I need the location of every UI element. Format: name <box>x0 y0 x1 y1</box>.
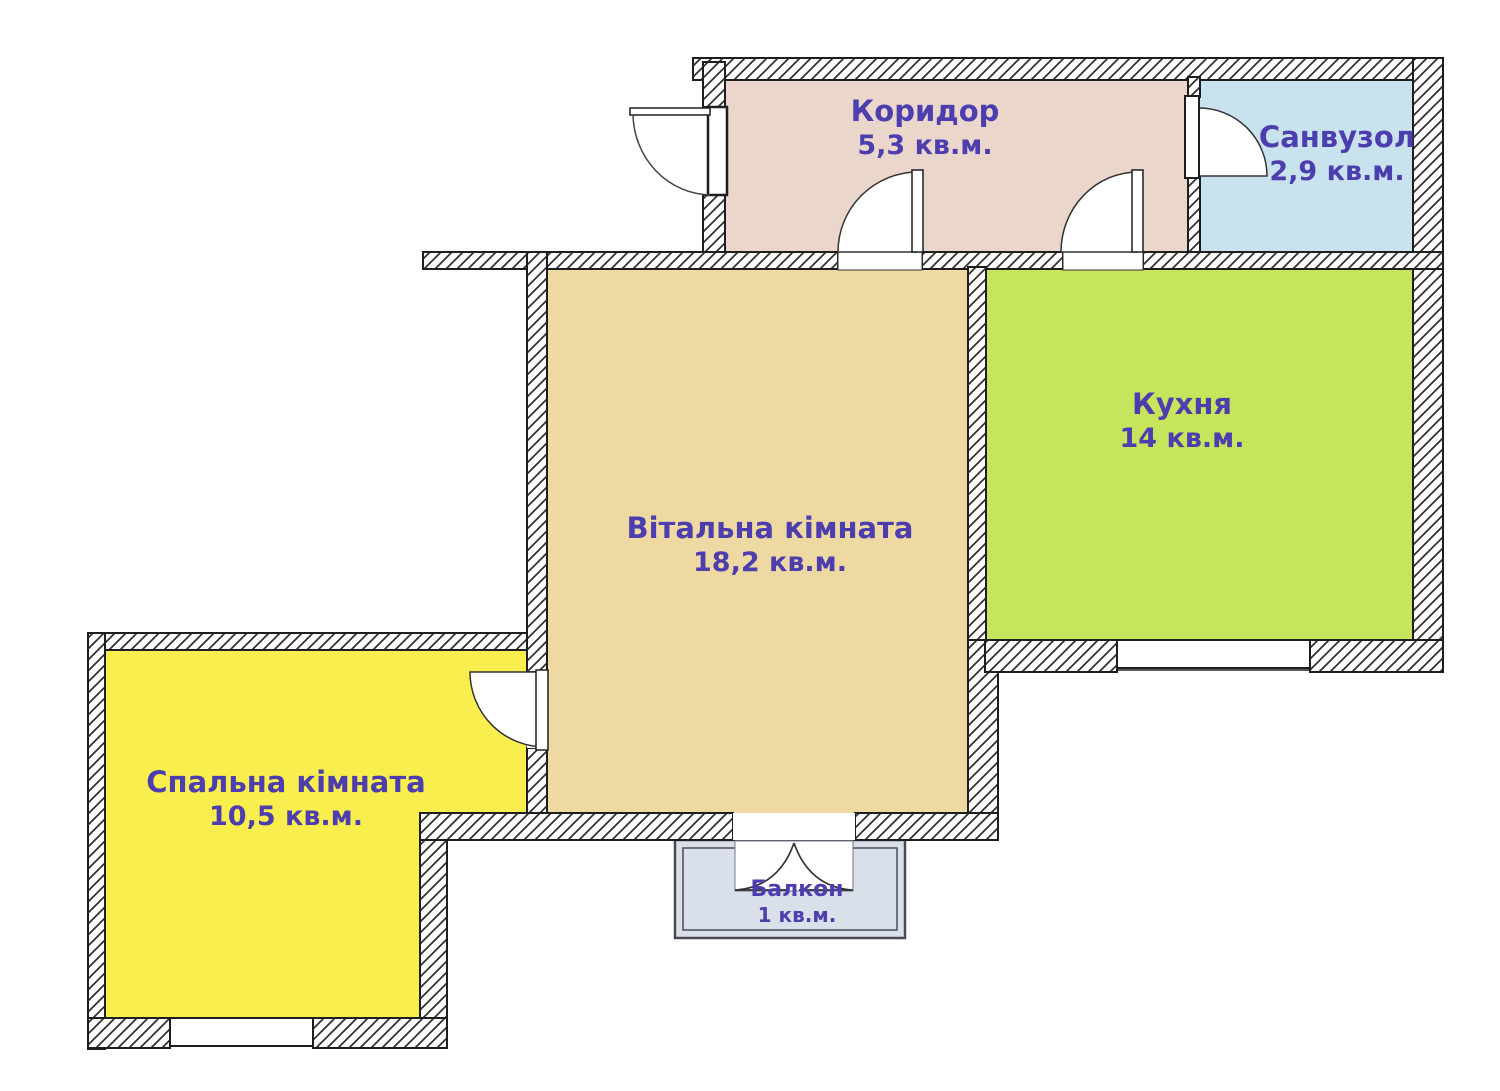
room-name-corridor: Коридор <box>851 93 1000 129</box>
wall-living-left-lower <box>527 748 547 814</box>
wall-bedroom-bottom-1 <box>88 1018 170 1048</box>
room-area-bedroom: 10,5 кв.м. <box>146 800 425 834</box>
wall-corridor-bottom-2 <box>922 252 1063 269</box>
window-bedroom <box>170 1018 313 1046</box>
room-name-kitchen: Кухня <box>1120 386 1245 422</box>
room-label-living: Вітальна кімната 18,2 кв.м. <box>626 510 913 580</box>
wall-top <box>693 58 1443 80</box>
wall-corridor-left-upper <box>703 62 725 107</box>
wall-living-bottom-2 <box>855 813 998 840</box>
wall-corridor-bottom-3 <box>1143 252 1443 269</box>
door-kitchen-leaf <box>1132 170 1143 252</box>
threshold-kitchen-door <box>1063 252 1143 270</box>
room-label-corridor: Коридор 5,3 кв.м. <box>851 93 1000 163</box>
wall-bath-divider-upper <box>1188 77 1200 97</box>
wall-kitchen-bottom-2 <box>1310 640 1443 672</box>
wall-living-left-upper <box>527 252 547 672</box>
door-bathroom-frame <box>1185 96 1199 178</box>
threshold-living-door <box>838 252 922 270</box>
room-label-kitchen: Кухня 14 кв.м. <box>1120 386 1245 456</box>
room-label-balcony: Балкон 1 кв.м. <box>751 877 844 927</box>
door-entrance-frame <box>708 107 727 195</box>
floor-plan: Коридор 5,3 кв.м. Санвузол 2,9 кв.м. Кух… <box>0 0 1500 1091</box>
wall-living-right-upper <box>968 267 986 640</box>
wall-bedroom-right-lower <box>420 840 447 1018</box>
wall-kitchen-bottom-1 <box>985 640 1117 672</box>
room-name-living: Вітальна кімната <box>626 510 913 546</box>
room-name-balcony: Балкон <box>751 877 844 903</box>
window-kitchen <box>1117 640 1310 668</box>
door-living-leaf <box>912 170 923 252</box>
door-entrance <box>630 107 727 195</box>
room-area-living: 18,2 кв.м. <box>626 546 913 580</box>
wall-living-bottom-1 <box>420 813 733 840</box>
door-entrance-arc <box>633 115 710 195</box>
room-area-bathroom: 2,9 кв.м. <box>1259 155 1415 189</box>
room-name-bedroom: Спальна кімната <box>146 764 425 800</box>
room-area-kitchen: 14 кв.м. <box>1120 422 1245 456</box>
wall-corridor-left-lower <box>703 195 725 253</box>
wall-corridor-bottom-1 <box>423 252 838 269</box>
wall-bedroom-left <box>88 633 105 1049</box>
wall-bedroom-top <box>88 633 527 650</box>
door-bedroom-leaf <box>536 670 548 750</box>
room-label-bathroom: Санвузол 2,9 кв.м. <box>1259 119 1415 189</box>
room-area-corridor: 5,3 кв.м. <box>851 129 1000 163</box>
room-label-bedroom: Спальна кімната 10,5 кв.м. <box>146 764 425 834</box>
wall-bath-divider-lower <box>1188 177 1200 254</box>
wall-right <box>1413 58 1443 672</box>
door-entrance-leaf <box>630 108 710 115</box>
wall-bedroom-bottom-2 <box>313 1018 447 1048</box>
room-name-bathroom: Санвузол <box>1259 119 1415 155</box>
room-area-balcony: 1 кв.м. <box>751 903 844 927</box>
opening-balcony-door <box>733 813 855 840</box>
